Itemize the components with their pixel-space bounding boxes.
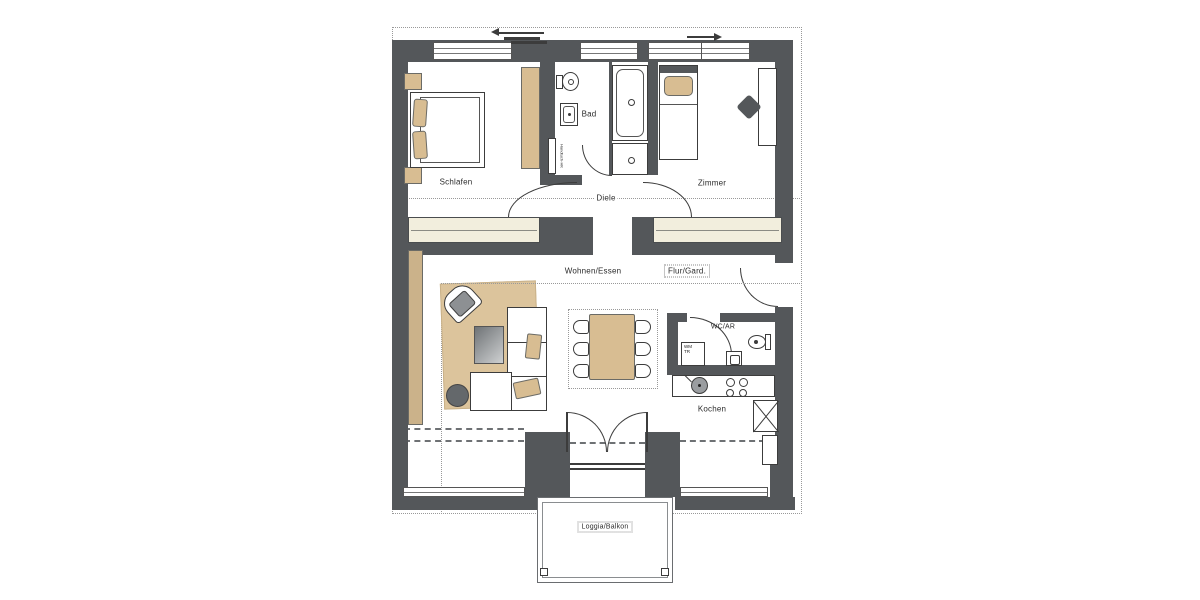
loggia-railing xyxy=(542,502,668,578)
towel-radiator xyxy=(548,138,556,174)
nightstand-bottom xyxy=(404,167,422,184)
sideboard xyxy=(408,250,423,425)
counter-right xyxy=(762,435,778,465)
floor-plan: Handtuch-HK xyxy=(390,20,805,598)
wall-mid-2 xyxy=(632,217,653,243)
built-in-closet-left xyxy=(408,217,540,243)
hob-burner-2 xyxy=(739,378,748,387)
toilet-bad xyxy=(562,72,579,91)
dining-chair-6 xyxy=(635,364,651,378)
wall-mid-band-right xyxy=(632,243,778,255)
label-flur-gard: Flur/Gard. xyxy=(664,265,710,278)
arrow-left-icon xyxy=(498,32,544,34)
dining-chair-1 xyxy=(573,320,589,334)
wall-wc-bottom xyxy=(667,365,775,375)
sink-wc xyxy=(726,351,742,366)
overhang-dashed-1 xyxy=(404,428,524,430)
dining-chair-3 xyxy=(573,364,589,378)
loggia-post-left xyxy=(540,568,548,576)
loggia-post-right xyxy=(661,568,669,576)
slide-sash-line-2 xyxy=(511,41,547,44)
window-bad xyxy=(580,42,638,60)
label-wm-tr: WM TR xyxy=(684,344,692,354)
wall-bottom-left xyxy=(392,497,537,510)
arrow-right-icon xyxy=(687,36,715,38)
label-wc-ar: WC/AR xyxy=(711,324,735,331)
label-schlafen: Schlafen xyxy=(440,178,473,187)
wall-mid-1 xyxy=(540,217,593,243)
sofa-chaise xyxy=(470,372,512,411)
sink-bad xyxy=(560,103,578,126)
window-kochen xyxy=(680,487,768,497)
dining-table xyxy=(589,314,635,380)
label-zimmer: Zimmer xyxy=(698,179,726,188)
kitchen-sink xyxy=(691,377,708,394)
french-door-leaf-right xyxy=(646,412,648,452)
hob-burner-1 xyxy=(726,378,735,387)
label-wohnen-essen: Wohnen/Essen xyxy=(565,267,622,276)
wall-bottom-kitchen xyxy=(675,497,795,510)
arrow-left-head-icon xyxy=(491,28,499,36)
label-wm-line2: TR xyxy=(684,349,692,354)
towel-radiator-label: Handtuch-HK xyxy=(560,144,565,168)
side-table xyxy=(446,384,469,407)
loggia-pier-left xyxy=(525,432,570,497)
wall-left xyxy=(392,40,408,497)
door-threshold-line-2 xyxy=(570,468,645,470)
built-in-closet-right xyxy=(653,217,782,243)
window-schlafen xyxy=(433,42,512,60)
hob-burner-4 xyxy=(739,389,747,397)
label-diele: Diele xyxy=(594,194,617,203)
wall-bad-zimmer xyxy=(648,62,658,175)
dining-chair-2 xyxy=(573,342,589,356)
coffee-table xyxy=(474,326,504,364)
wall-mid-band-left xyxy=(408,243,593,255)
arrow-right-head-icon xyxy=(714,33,722,41)
dining-chair-4 xyxy=(635,320,651,334)
pillow-2 xyxy=(412,131,428,160)
label-loggia-balkon: Loggia/Balkon xyxy=(578,522,633,533)
toilet-wc xyxy=(748,335,766,349)
slide-sash-line-1 xyxy=(504,37,540,40)
bathtub xyxy=(612,65,648,141)
floor-plan-canvas: Handtuch-HK xyxy=(0,0,1200,600)
sofa-cushion-1 xyxy=(525,333,543,359)
upper-cabinet-dashed-line xyxy=(680,440,765,442)
nightstand-top xyxy=(404,73,422,90)
pillow-1 xyxy=(412,99,428,128)
wall-wc-top xyxy=(667,313,775,322)
overhang-dashed-2 xyxy=(404,440,524,442)
wardrobe xyxy=(521,67,540,169)
hob-burner-3 xyxy=(726,389,734,397)
label-bad: Bad xyxy=(582,110,597,119)
pillow-zimmer xyxy=(664,76,693,96)
door-threshold-line-1 xyxy=(570,463,645,465)
shower xyxy=(612,143,648,175)
label-kochen: Kochen xyxy=(698,405,726,414)
shaft-x-box xyxy=(753,400,778,432)
window-wohnen xyxy=(403,487,525,497)
loggia-pier-right xyxy=(645,432,680,497)
dining-chair-5 xyxy=(635,342,651,356)
french-door-leaf-left xyxy=(566,412,568,452)
window-zimmer xyxy=(648,42,750,60)
section-dotted-line-lower xyxy=(441,283,800,284)
